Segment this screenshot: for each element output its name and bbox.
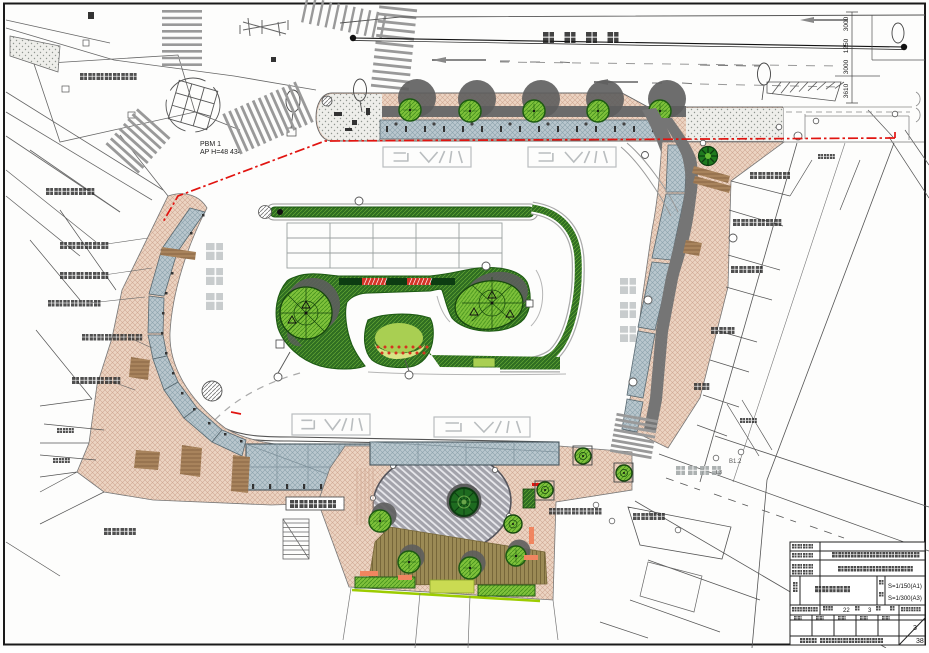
- svg-text:3000: 3000: [843, 59, 850, 74]
- svg-text:3: 3: [913, 625, 917, 632]
- svg-text:B1.2: B1.2: [729, 459, 742, 465]
- svg-text:L3: L3: [716, 470, 722, 476]
- svg-text:22: 22: [843, 608, 850, 614]
- svg-text:PBM 1: PBM 1: [200, 141, 221, 148]
- svg-text:S=1/300(A3): S=1/300(A3): [888, 596, 922, 602]
- svg-text:3000: 3000: [843, 16, 850, 31]
- svg-text:AP H=48 434: AP H=48 434: [200, 149, 242, 156]
- svg-text:S=1/150(A1): S=1/150(A1): [888, 584, 922, 590]
- svg-text:3610: 3610: [843, 83, 850, 98]
- svg-text:1250: 1250: [843, 38, 850, 53]
- svg-text:38: 38: [916, 638, 924, 645]
